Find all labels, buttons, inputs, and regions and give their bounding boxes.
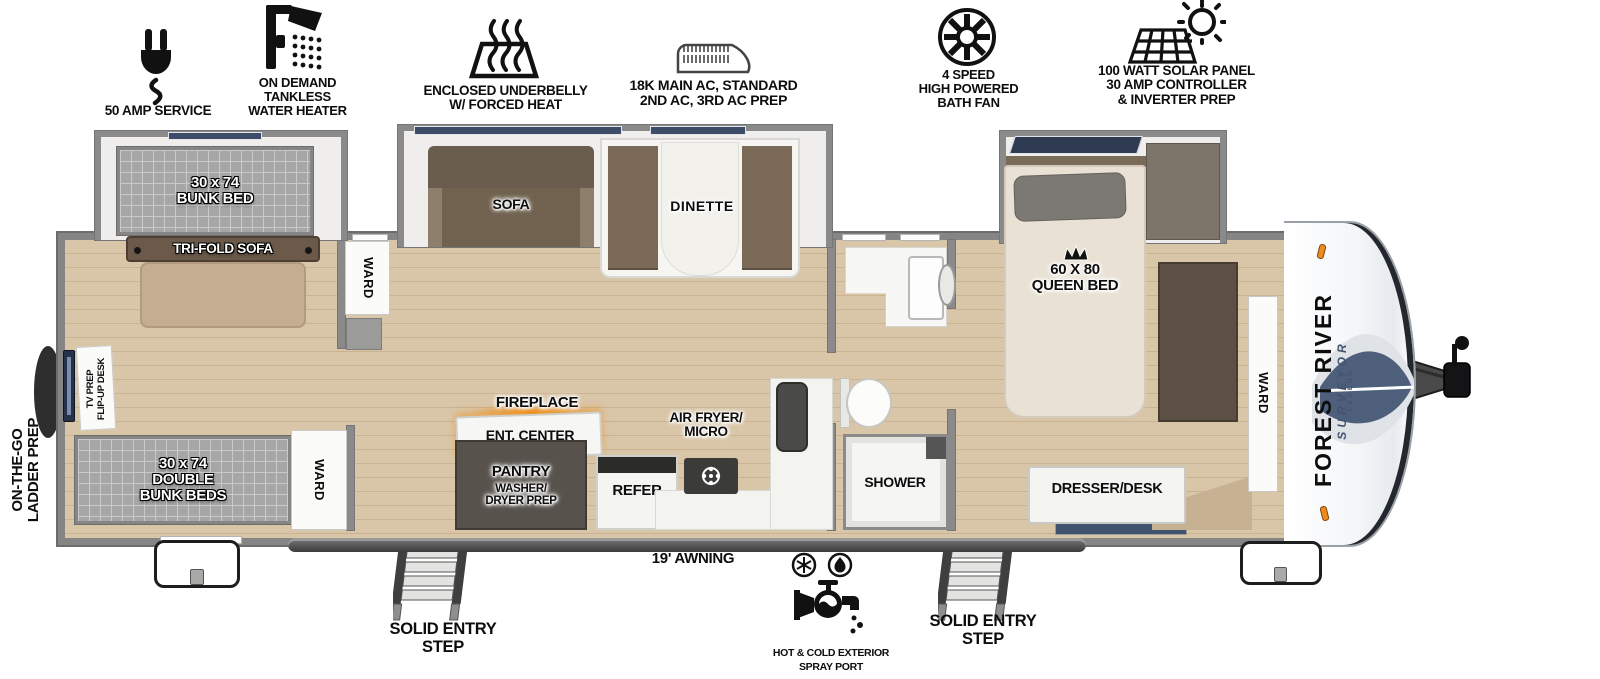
feature-label-water-heater: ON DEMAND TANKLESS WATER HEATER: [225, 76, 370, 118]
shower-seat: [926, 437, 946, 459]
tv: [63, 350, 75, 422]
bunk-bed-label: 30 x 74 BUNK BED: [177, 175, 254, 207]
window: [1009, 136, 1143, 154]
queen-pillow: [1013, 172, 1127, 222]
feature-label-solar: 100 WATT SOLAR PANEL 30 AMP CONTROLLER &…: [1064, 64, 1289, 107]
kitchen-sink: [776, 382, 808, 452]
solar-panel-icon: [1126, 0, 1226, 68]
sofa-label: SOFA: [466, 197, 556, 212]
underbelly-heat-icon: [462, 12, 546, 84]
interior-wall: [338, 240, 345, 348]
window: [900, 234, 940, 241]
refrigerator-top: [598, 457, 676, 473]
cabinet: [346, 318, 382, 350]
window: [352, 234, 388, 241]
ac-unit-icon: [670, 36, 756, 76]
feature-label-ac: 18K MAIN AC, STANDARD 2ND AC, 3RD AC PRE…: [601, 78, 826, 108]
power-plug-icon: [136, 28, 176, 106]
spray-port-label: HOT & COLD EXTERIOR SPRAY PORT: [746, 646, 916, 674]
cooktop: [684, 458, 738, 494]
sofa-bolt: [134, 247, 141, 254]
wardrobe-label: WARD: [311, 450, 327, 510]
entry-step-label: SOLID ENTRY STEP: [908, 613, 1058, 648]
window: [414, 126, 622, 135]
brand-name: FOREST RIVER: [1311, 293, 1336, 487]
tri-fold-sofa: TRI-FOLD SOFA: [126, 236, 320, 262]
tri-fold-sofa-label: TRI-FOLD SOFA: [173, 242, 273, 256]
feature-label-bath-fan: 4 SPEED HIGH POWERED BATH FAN: [896, 68, 1041, 110]
awning-label: 19' AWNING: [628, 551, 758, 567]
front-closet: [1158, 262, 1238, 422]
window: [168, 132, 262, 140]
brand-block: FOREST RIVER SURVEYOR LEGEND: [1306, 285, 1360, 495]
floorplan-diagram: 50 AMP SERVICE ON DEMAND TANKLESS WATER …: [0, 0, 1600, 679]
trim-name: LEGEND: [1348, 369, 1355, 411]
storage-door: [154, 540, 240, 588]
bath-mirror: [938, 264, 956, 306]
interior-wall: [347, 426, 354, 530]
bathroom-wall: [828, 240, 835, 352]
bathroom-wall: [948, 410, 955, 530]
feature-label-underbelly: ENCLOSED UNDERBELLY W/ FORCED HEAT: [413, 84, 598, 113]
slide-cabinet: [1146, 143, 1220, 240]
queen-bed-label: 60 X 80 QUEEN BED: [1005, 262, 1145, 294]
air-fryer-label: AIR FRYER/ MICRO: [644, 411, 768, 440]
sofa-armrest: [428, 188, 442, 247]
bunk-bed: 30 x 74 BUNK BED: [117, 147, 313, 235]
sofa-back: [428, 146, 594, 190]
double-bunk-label: 30 x 74 DOUBLE BUNK BEDS: [140, 456, 226, 504]
storage-door: [1240, 541, 1322, 585]
burner-icon: [700, 465, 722, 487]
spray-port-icon: [790, 552, 868, 644]
window: [650, 126, 746, 135]
sofa-bed-area: [140, 262, 306, 328]
bath-fan-icon: [936, 6, 998, 68]
feature-label-50amp: 50 AMP SERVICE: [88, 104, 228, 118]
pantry-sub-label: WASHER/ DRYER PREP: [458, 483, 584, 508]
fireplace-label: FIREPLACE: [462, 395, 612, 411]
window: [842, 234, 886, 241]
dinette-label: DINETTE: [640, 199, 764, 214]
sofa-armrest: [580, 188, 594, 247]
entry-step-label: SOLID ENTRY STEP: [368, 621, 518, 656]
entry-step-icon: [393, 544, 471, 626]
pantry-label: PANTRY: [458, 464, 584, 480]
toilet: [846, 378, 892, 428]
crown-icon: [1062, 244, 1090, 262]
shower-head-icon: [258, 4, 330, 78]
double-bunk-beds: 30 x 74 DOUBLE BUNK BEDS: [75, 436, 291, 524]
tv-screen: [67, 357, 71, 415]
shower-label: SHOWER: [845, 475, 945, 490]
door-latch: [1274, 567, 1287, 582]
dresser-label: DRESSER/DESK: [1030, 482, 1184, 498]
front-wardrobe-label: WARD: [1255, 363, 1271, 423]
door-latch: [190, 569, 204, 585]
tv-prep-label: TV PREP FLIP-UP DESK: [85, 347, 109, 431]
sofa-bolt: [305, 247, 312, 254]
ladder-prep-label: ON-THE-GO LADDER PREP: [7, 395, 45, 545]
wardrobe-label: WARD: [360, 248, 376, 308]
